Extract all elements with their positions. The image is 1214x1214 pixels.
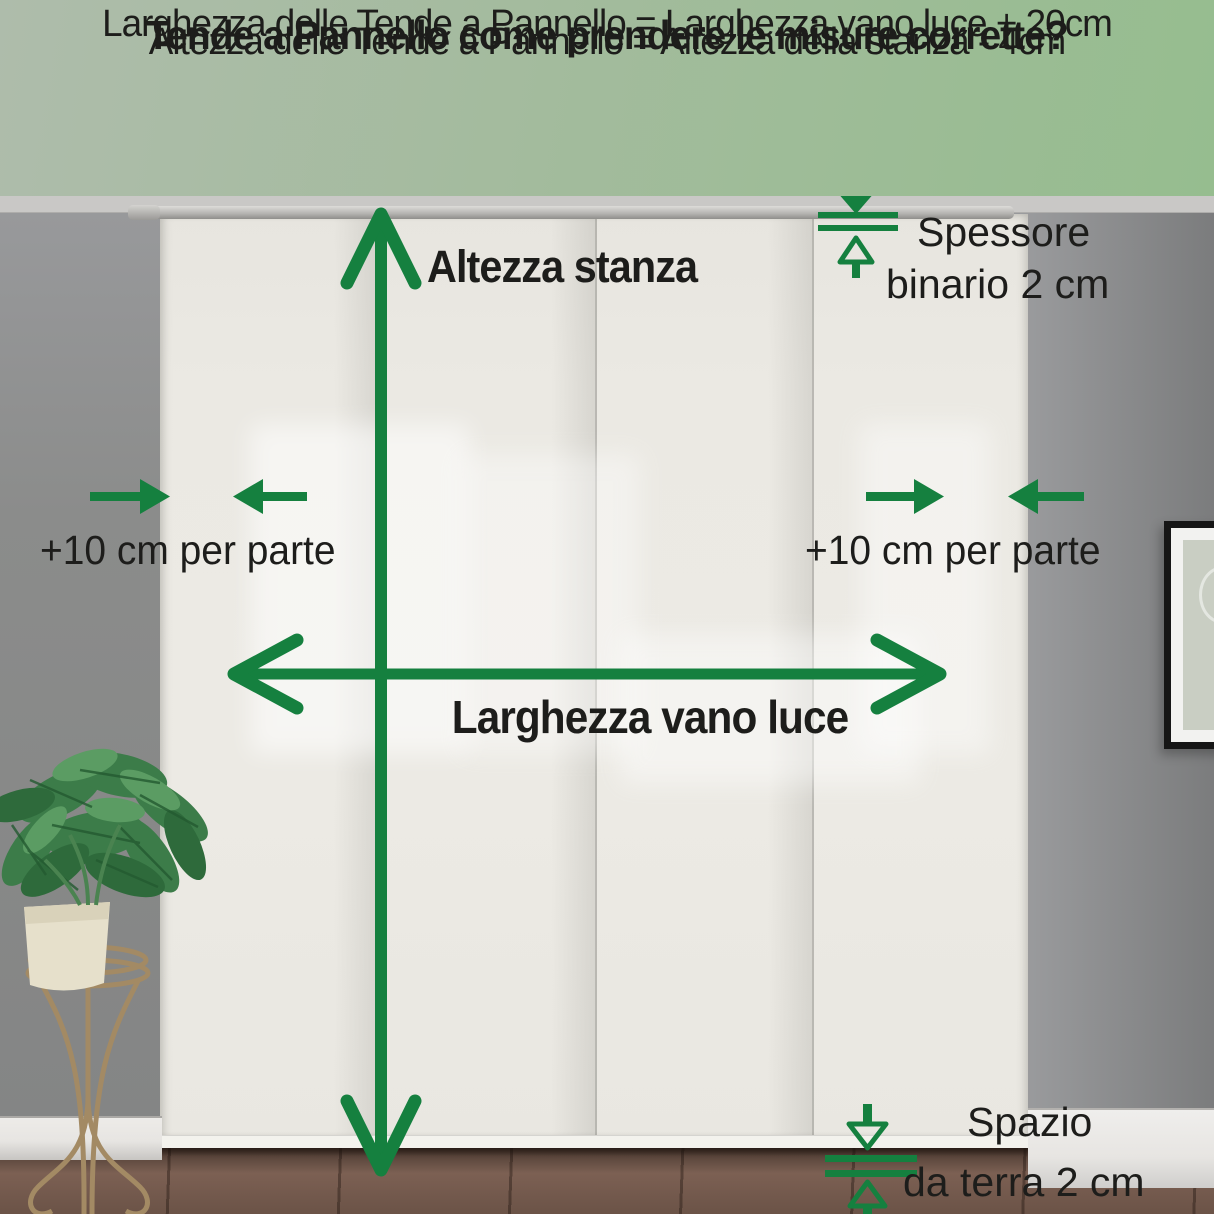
floor-gap-label-line1: Spazio [967,1101,1092,1144]
right-offset-label: +10 cm per parte [805,529,1101,572]
floor-gap-label-line2: da terra 2 cm [903,1161,1145,1204]
left-offset-label: +10 cm per parte [40,529,336,572]
plant-leaves [0,742,217,907]
potted-plant [0,735,250,1214]
picture-frame [1164,521,1214,749]
frame-artwork-circle [1199,566,1214,624]
frame-artwork [1183,540,1214,730]
opening-width-label: Larghezza vano luce [411,693,889,741]
header-banner: Tende a Pannello come prendere le misure… [0,0,1214,196]
panel-curtains [160,214,1028,1148]
curtain-rail-endcap [128,205,160,220]
room-height-label: Altezza stanza [427,243,697,290]
infographic-panel-curtain-measuring: Tende a Pannello come prendere le misure… [0,0,1214,1214]
track-thickness-label-line1: Spessore [917,211,1090,254]
width-formula-text: Larghezza delle Tende a Pannello = Largh… [18,0,1196,49]
curtain-rail [128,206,1014,219]
curtain-hem [160,1135,1028,1148]
track-thickness-label-line2: binario 2 cm [886,263,1109,306]
